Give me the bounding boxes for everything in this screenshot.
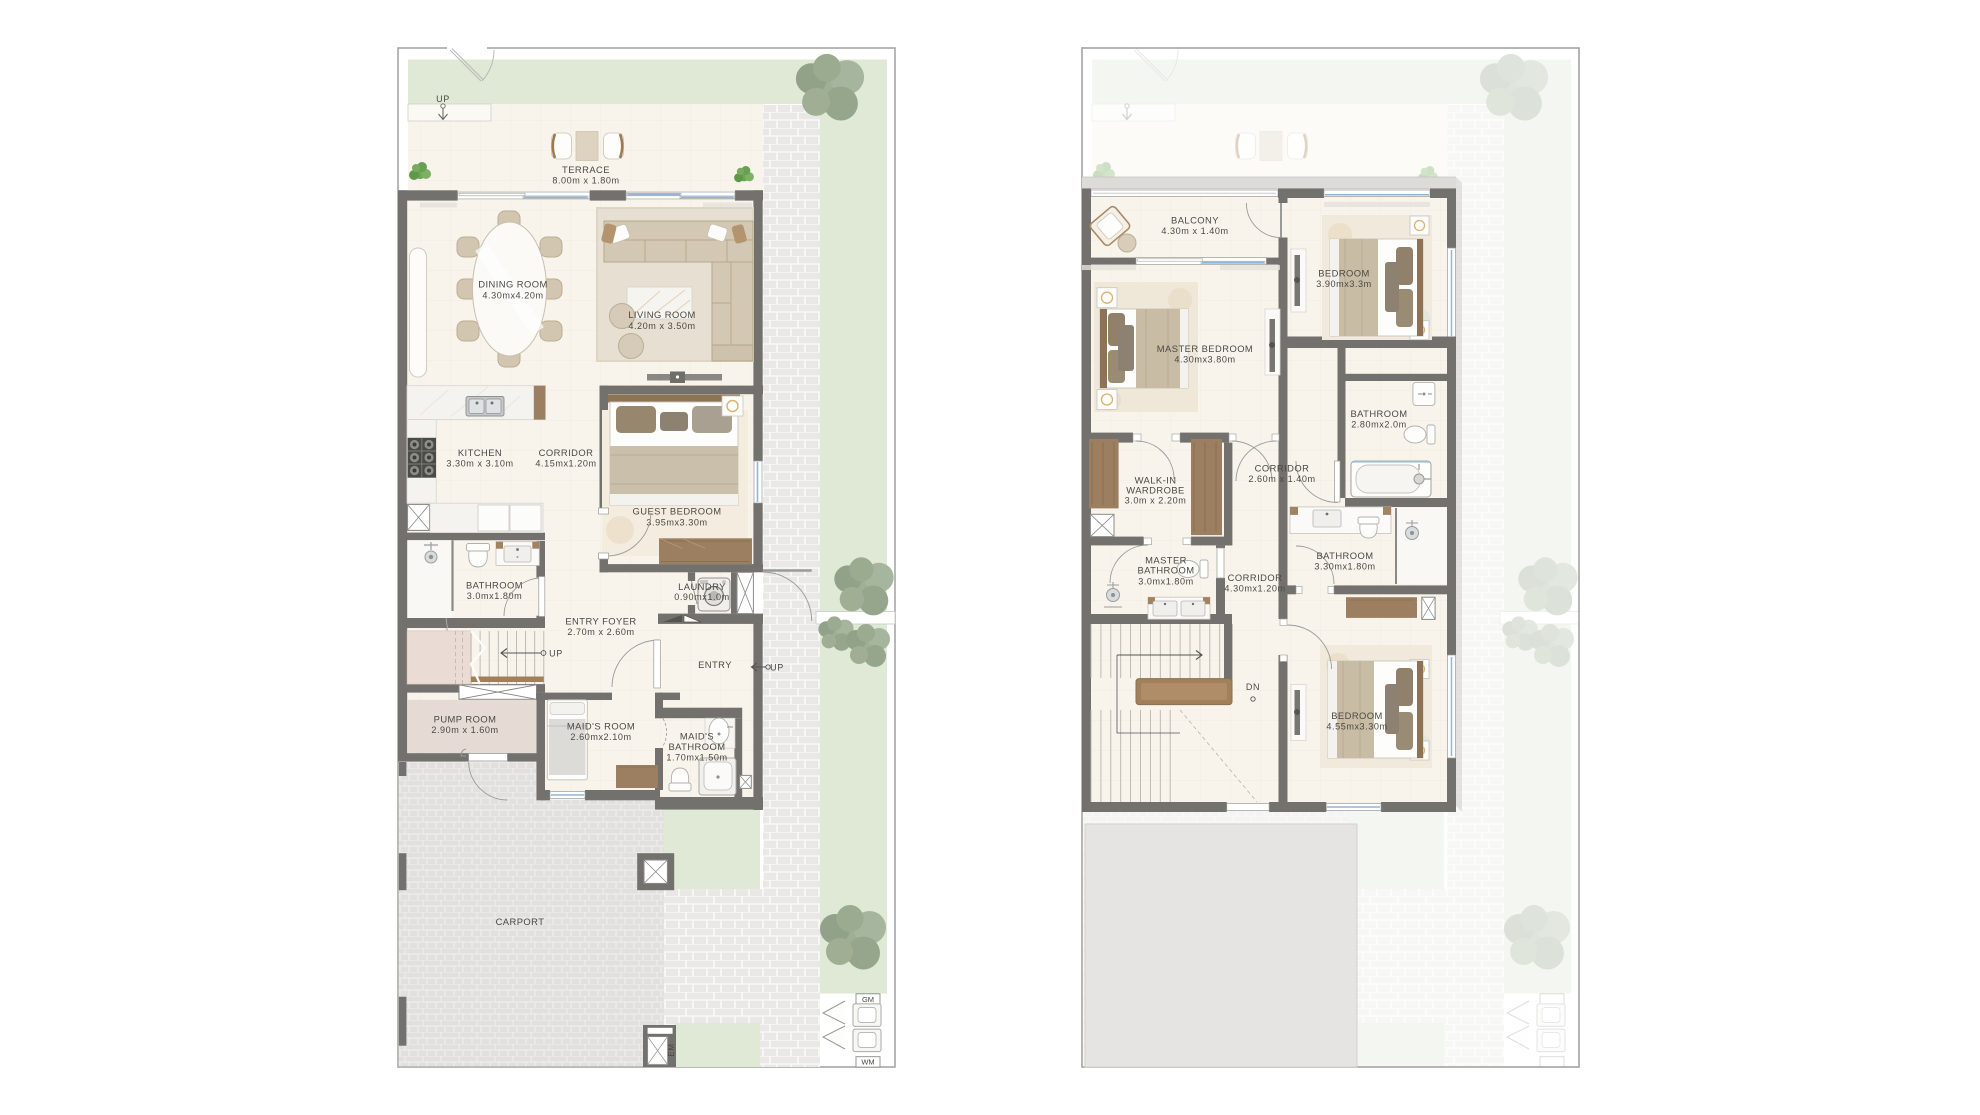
svg-text:WARDROBE: WARDROBE: [1126, 485, 1184, 496]
svg-text:UP: UP: [436, 94, 450, 104]
svg-text:EM: EM: [667, 1043, 676, 1056]
svg-text:4.30mx4.20m: 4.30mx4.20m: [482, 290, 543, 300]
svg-text:MASTER BEDROOM: MASTER BEDROOM: [1157, 343, 1253, 354]
svg-text:3.0mx1.80m: 3.0mx1.80m: [467, 591, 523, 601]
svg-text:BATHROOM: BATHROOM: [466, 580, 523, 591]
svg-text:4.55mx3.30m: 4.55mx3.30m: [1326, 722, 1387, 732]
svg-text:MAID'S: MAID'S: [680, 731, 714, 742]
svg-text:8.00m x 1.80m: 8.00m x 1.80m: [552, 176, 619, 186]
svg-text:BATHROOM: BATHROOM: [1137, 565, 1194, 576]
svg-text:4.15mx1.20m: 4.15mx1.20m: [535, 459, 596, 469]
svg-text:3.0mx1.80m: 3.0mx1.80m: [1138, 577, 1194, 587]
svg-text:KITCHEN: KITCHEN: [458, 447, 502, 458]
svg-text:DINING ROOM: DINING ROOM: [478, 279, 548, 290]
svg-text:DN: DN: [1246, 682, 1260, 692]
svg-text:TERRACE: TERRACE: [562, 164, 610, 175]
svg-text:3.30m x 3.10m: 3.30m x 3.10m: [446, 459, 513, 469]
svg-text:2.60mx2.10m: 2.60mx2.10m: [570, 732, 631, 742]
svg-text:3.0m x 2.20m: 3.0m x 2.20m: [1125, 496, 1187, 506]
svg-text:CORRIDOR: CORRIDOR: [1255, 463, 1310, 474]
svg-text:CORRIDOR: CORRIDOR: [1228, 572, 1283, 583]
svg-text:4.30mx1.20m: 4.30mx1.20m: [1224, 584, 1285, 594]
svg-text:BEDROOM: BEDROOM: [1318, 268, 1370, 279]
svg-text:BATHROOM: BATHROOM: [668, 741, 725, 752]
svg-text:3.30mx1.80m: 3.30mx1.80m: [1314, 562, 1375, 572]
svg-text:GUEST BEDROOM: GUEST BEDROOM: [632, 506, 721, 517]
svg-text:2.90m x 1.60m: 2.90m x 1.60m: [431, 725, 498, 735]
svg-text:LIVING ROOM: LIVING ROOM: [628, 309, 695, 320]
svg-text:ENTRY FOYER: ENTRY FOYER: [565, 616, 636, 627]
svg-text:CORRIDOR: CORRIDOR: [539, 447, 594, 458]
svg-text:4.30mx3.80m: 4.30mx3.80m: [1174, 355, 1235, 365]
svg-text:BATHROOM: BATHROOM: [1350, 408, 1407, 419]
svg-text:ENTRY: ENTRY: [698, 659, 732, 670]
svg-text:0.90mx1.0m: 0.90mx1.0m: [674, 592, 730, 602]
svg-text:4.30m x 1.40m: 4.30m x 1.40m: [1161, 226, 1228, 236]
svg-text:2.70m x 2.60m: 2.70m x 2.60m: [567, 627, 634, 637]
svg-text:3.90mx3.3m: 3.90mx3.3m: [1316, 279, 1372, 289]
svg-text:UP: UP: [549, 649, 563, 659]
svg-text:UP: UP: [770, 663, 784, 673]
svg-text:2.60m x 1.40m: 2.60m x 1.40m: [1248, 474, 1315, 484]
svg-text:3.95mx3.30m: 3.95mx3.30m: [646, 518, 707, 528]
svg-text:BEDROOM: BEDROOM: [1331, 710, 1383, 721]
svg-text:1.70mx1.50m: 1.70mx1.50m: [666, 753, 727, 763]
svg-text:BATHROOM: BATHROOM: [1316, 550, 1373, 561]
svg-text:GM: GM: [862, 995, 874, 1004]
svg-text:BALCONY: BALCONY: [1171, 215, 1219, 226]
svg-text:MAID'S ROOM: MAID'S ROOM: [567, 721, 635, 732]
svg-text:LAUNDRY: LAUNDRY: [678, 581, 726, 592]
svg-text:WM: WM: [861, 1058, 874, 1067]
svg-text:PUMP ROOM: PUMP ROOM: [434, 714, 497, 725]
svg-text:2.80mx2.0m: 2.80mx2.0m: [1351, 420, 1407, 430]
svg-text:4.20m x 3.50m: 4.20m x 3.50m: [628, 321, 695, 331]
svg-text:CARPORT: CARPORT: [496, 916, 545, 927]
